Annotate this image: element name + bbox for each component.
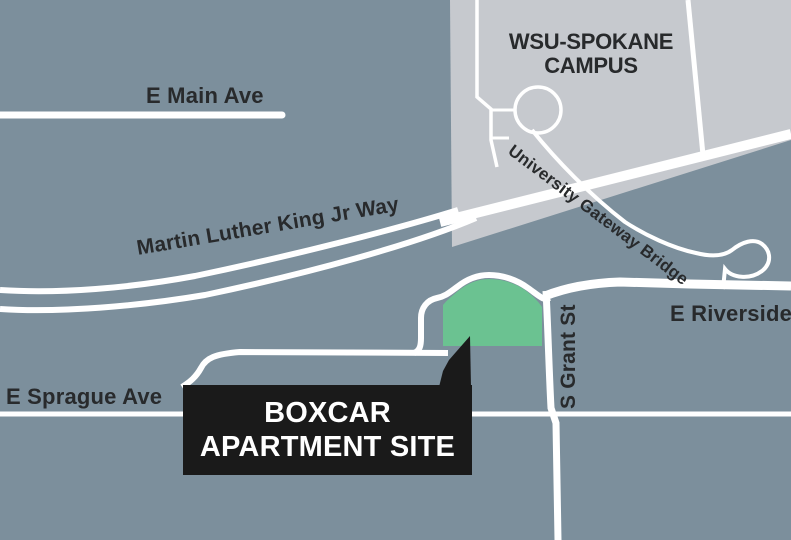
callout-line1: BOXCAR: [264, 396, 391, 430]
label-wsu-campus-line1: WSU-SPOKANE: [506, 30, 676, 54]
label-s-grant-st: S Grant St: [557, 304, 581, 409]
callout-boxcar-apartment-site: BOXCAR APARTMENT SITE: [183, 385, 472, 475]
label-wsu-campus-line2: CAMPUS: [506, 54, 676, 78]
callout-line2: APARTMENT SITE: [200, 430, 455, 464]
map-canvas: E Main Ave Martin Luther King Jr Way WSU…: [0, 0, 791, 540]
label-e-sprague-ave: E Sprague Ave: [6, 384, 162, 410]
label-e-main-ave: E Main Ave: [146, 83, 264, 109]
label-wsu-campus: WSU-SPOKANE CAMPUS: [506, 30, 676, 78]
label-e-riverside: E Riverside: [670, 301, 791, 327]
